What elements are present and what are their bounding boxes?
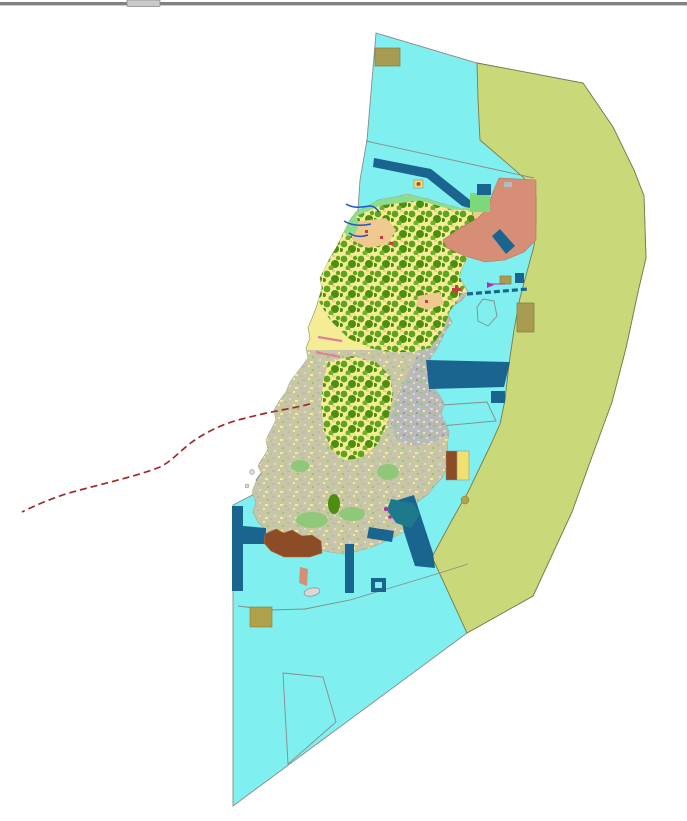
map-viewport <box>0 0 687 821</box>
khaki-parcel-south <box>250 607 272 627</box>
red-speck <box>365 230 368 233</box>
red-mark <box>455 285 458 294</box>
islet-dot <box>245 484 249 488</box>
buoy-dot <box>461 496 469 504</box>
islet-dot <box>250 470 255 475</box>
navy-parcel-harbor <box>491 391 505 403</box>
harbor-basin-east <box>426 360 510 389</box>
meadow-patch <box>339 507 365 521</box>
meadow-patch <box>377 464 399 480</box>
facility-khaki-block <box>457 451 469 480</box>
red-speck <box>380 236 383 239</box>
jetty-bar-south <box>345 544 354 593</box>
red-speck <box>390 242 393 245</box>
salmon-zone-mark <box>504 182 512 187</box>
khaki-parcel-east-large <box>517 303 534 332</box>
dark-green-patch <box>328 494 340 514</box>
red-speck <box>425 300 428 303</box>
hollow-dock-inner <box>375 582 382 588</box>
navy-parcel-east <box>515 273 524 283</box>
magenta-mark <box>384 507 388 511</box>
khaki-parcel-north <box>375 48 400 66</box>
marker-dot <box>417 182 421 186</box>
park-parcel <box>470 193 490 212</box>
marker-north <box>414 180 423 188</box>
navy-parcel-north <box>477 184 491 195</box>
meadow-patch <box>291 460 309 472</box>
meadow-patch <box>296 512 328 528</box>
top-tab-handle[interactable] <box>127 0 160 7</box>
top-edge-bar <box>0 2 687 5</box>
khaki-parcel-east-small <box>500 276 511 284</box>
magenta-mark <box>388 515 392 519</box>
facility-brown-block <box>446 451 457 480</box>
salmon-blob-south <box>299 567 308 586</box>
landuse-map-canvas[interactable] <box>0 0 687 821</box>
